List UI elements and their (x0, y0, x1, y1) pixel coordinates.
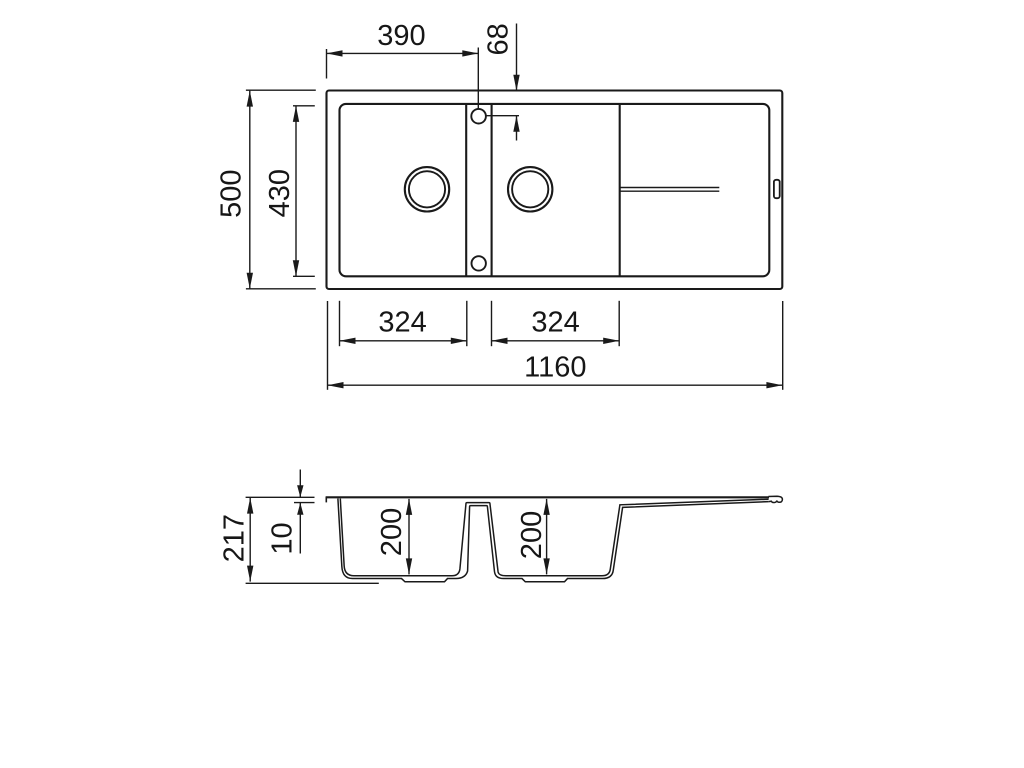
svg-text:217: 217 (218, 514, 250, 562)
svg-text:68: 68 (483, 23, 515, 55)
svg-text:390: 390 (377, 20, 425, 52)
svg-text:1160: 1160 (524, 352, 586, 384)
svg-text:200: 200 (376, 508, 408, 556)
svg-text:200: 200 (516, 511, 548, 559)
svg-text:430: 430 (264, 169, 296, 217)
svg-text:500: 500 (216, 170, 248, 218)
svg-text:10: 10 (267, 522, 299, 554)
svg-text:324: 324 (531, 307, 579, 339)
svg-text:324: 324 (378, 307, 426, 339)
